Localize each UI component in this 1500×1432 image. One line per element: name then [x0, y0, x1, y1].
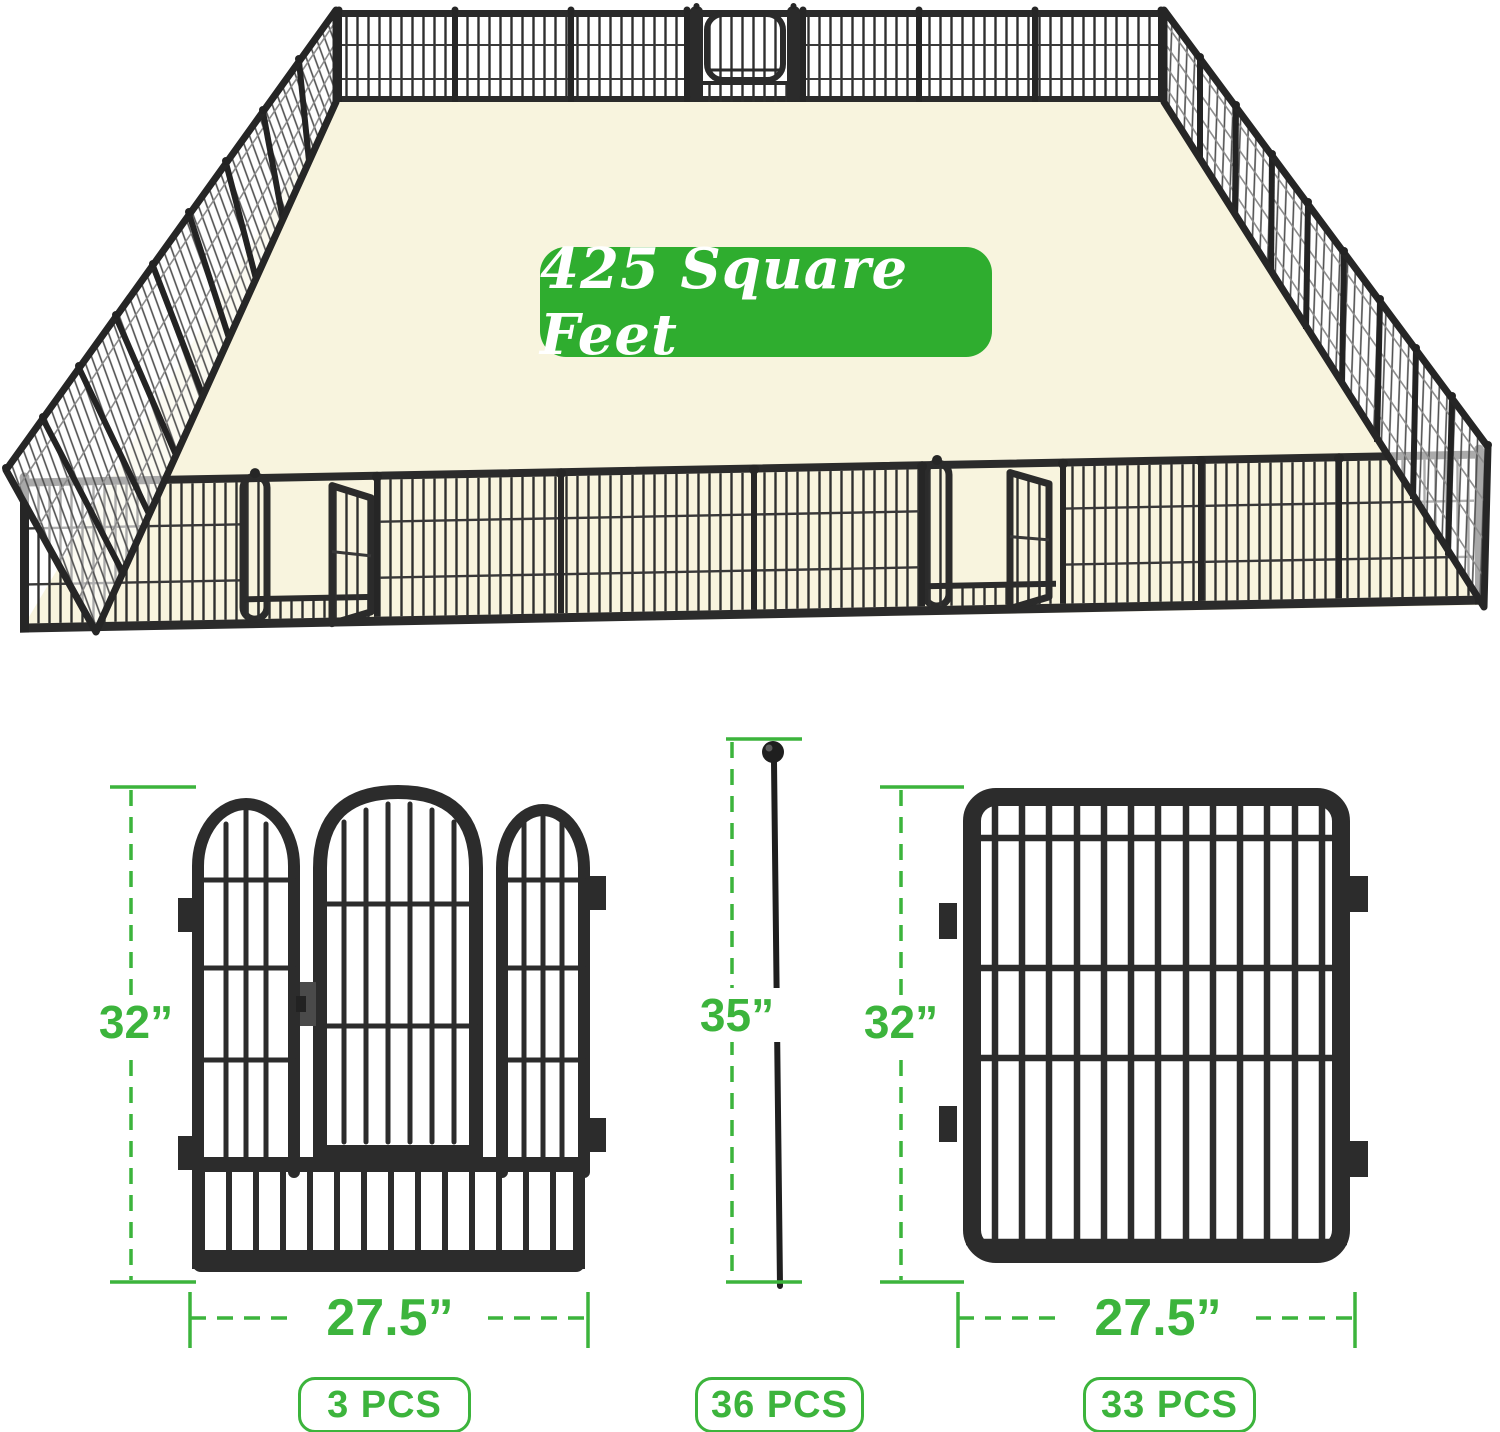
- stake-height-label: 35”: [685, 988, 789, 1042]
- stake-count-badge: 36 PCS: [695, 1377, 864, 1432]
- area-banner: 425 Square Feet: [540, 247, 992, 357]
- fence-panel-graphic: [939, 797, 1368, 1254]
- fence-panel-width-label: 27.5”: [1060, 1288, 1256, 1348]
- gate-panel-width-label: 27.5”: [292, 1288, 488, 1348]
- fence-panel-count-badge: 33 PCS: [1083, 1377, 1256, 1432]
- product-dimension-diagram: 425 Square Feet 32” 35” 32” 27.5” 27.5” …: [0, 0, 1500, 1432]
- playpen-illustration: [0, 0, 1500, 1432]
- fence-panel-bars: [966, 806, 1347, 1253]
- back-wall: [336, 3, 1165, 102]
- gate-panel-graphic: [178, 792, 606, 1272]
- back-gate: [690, 3, 800, 102]
- fence-panel-height-label: 32”: [849, 995, 953, 1049]
- gate-panel-count-badge: 3 PCS: [298, 1377, 471, 1432]
- gate-panel-height-label: 32”: [84, 995, 188, 1049]
